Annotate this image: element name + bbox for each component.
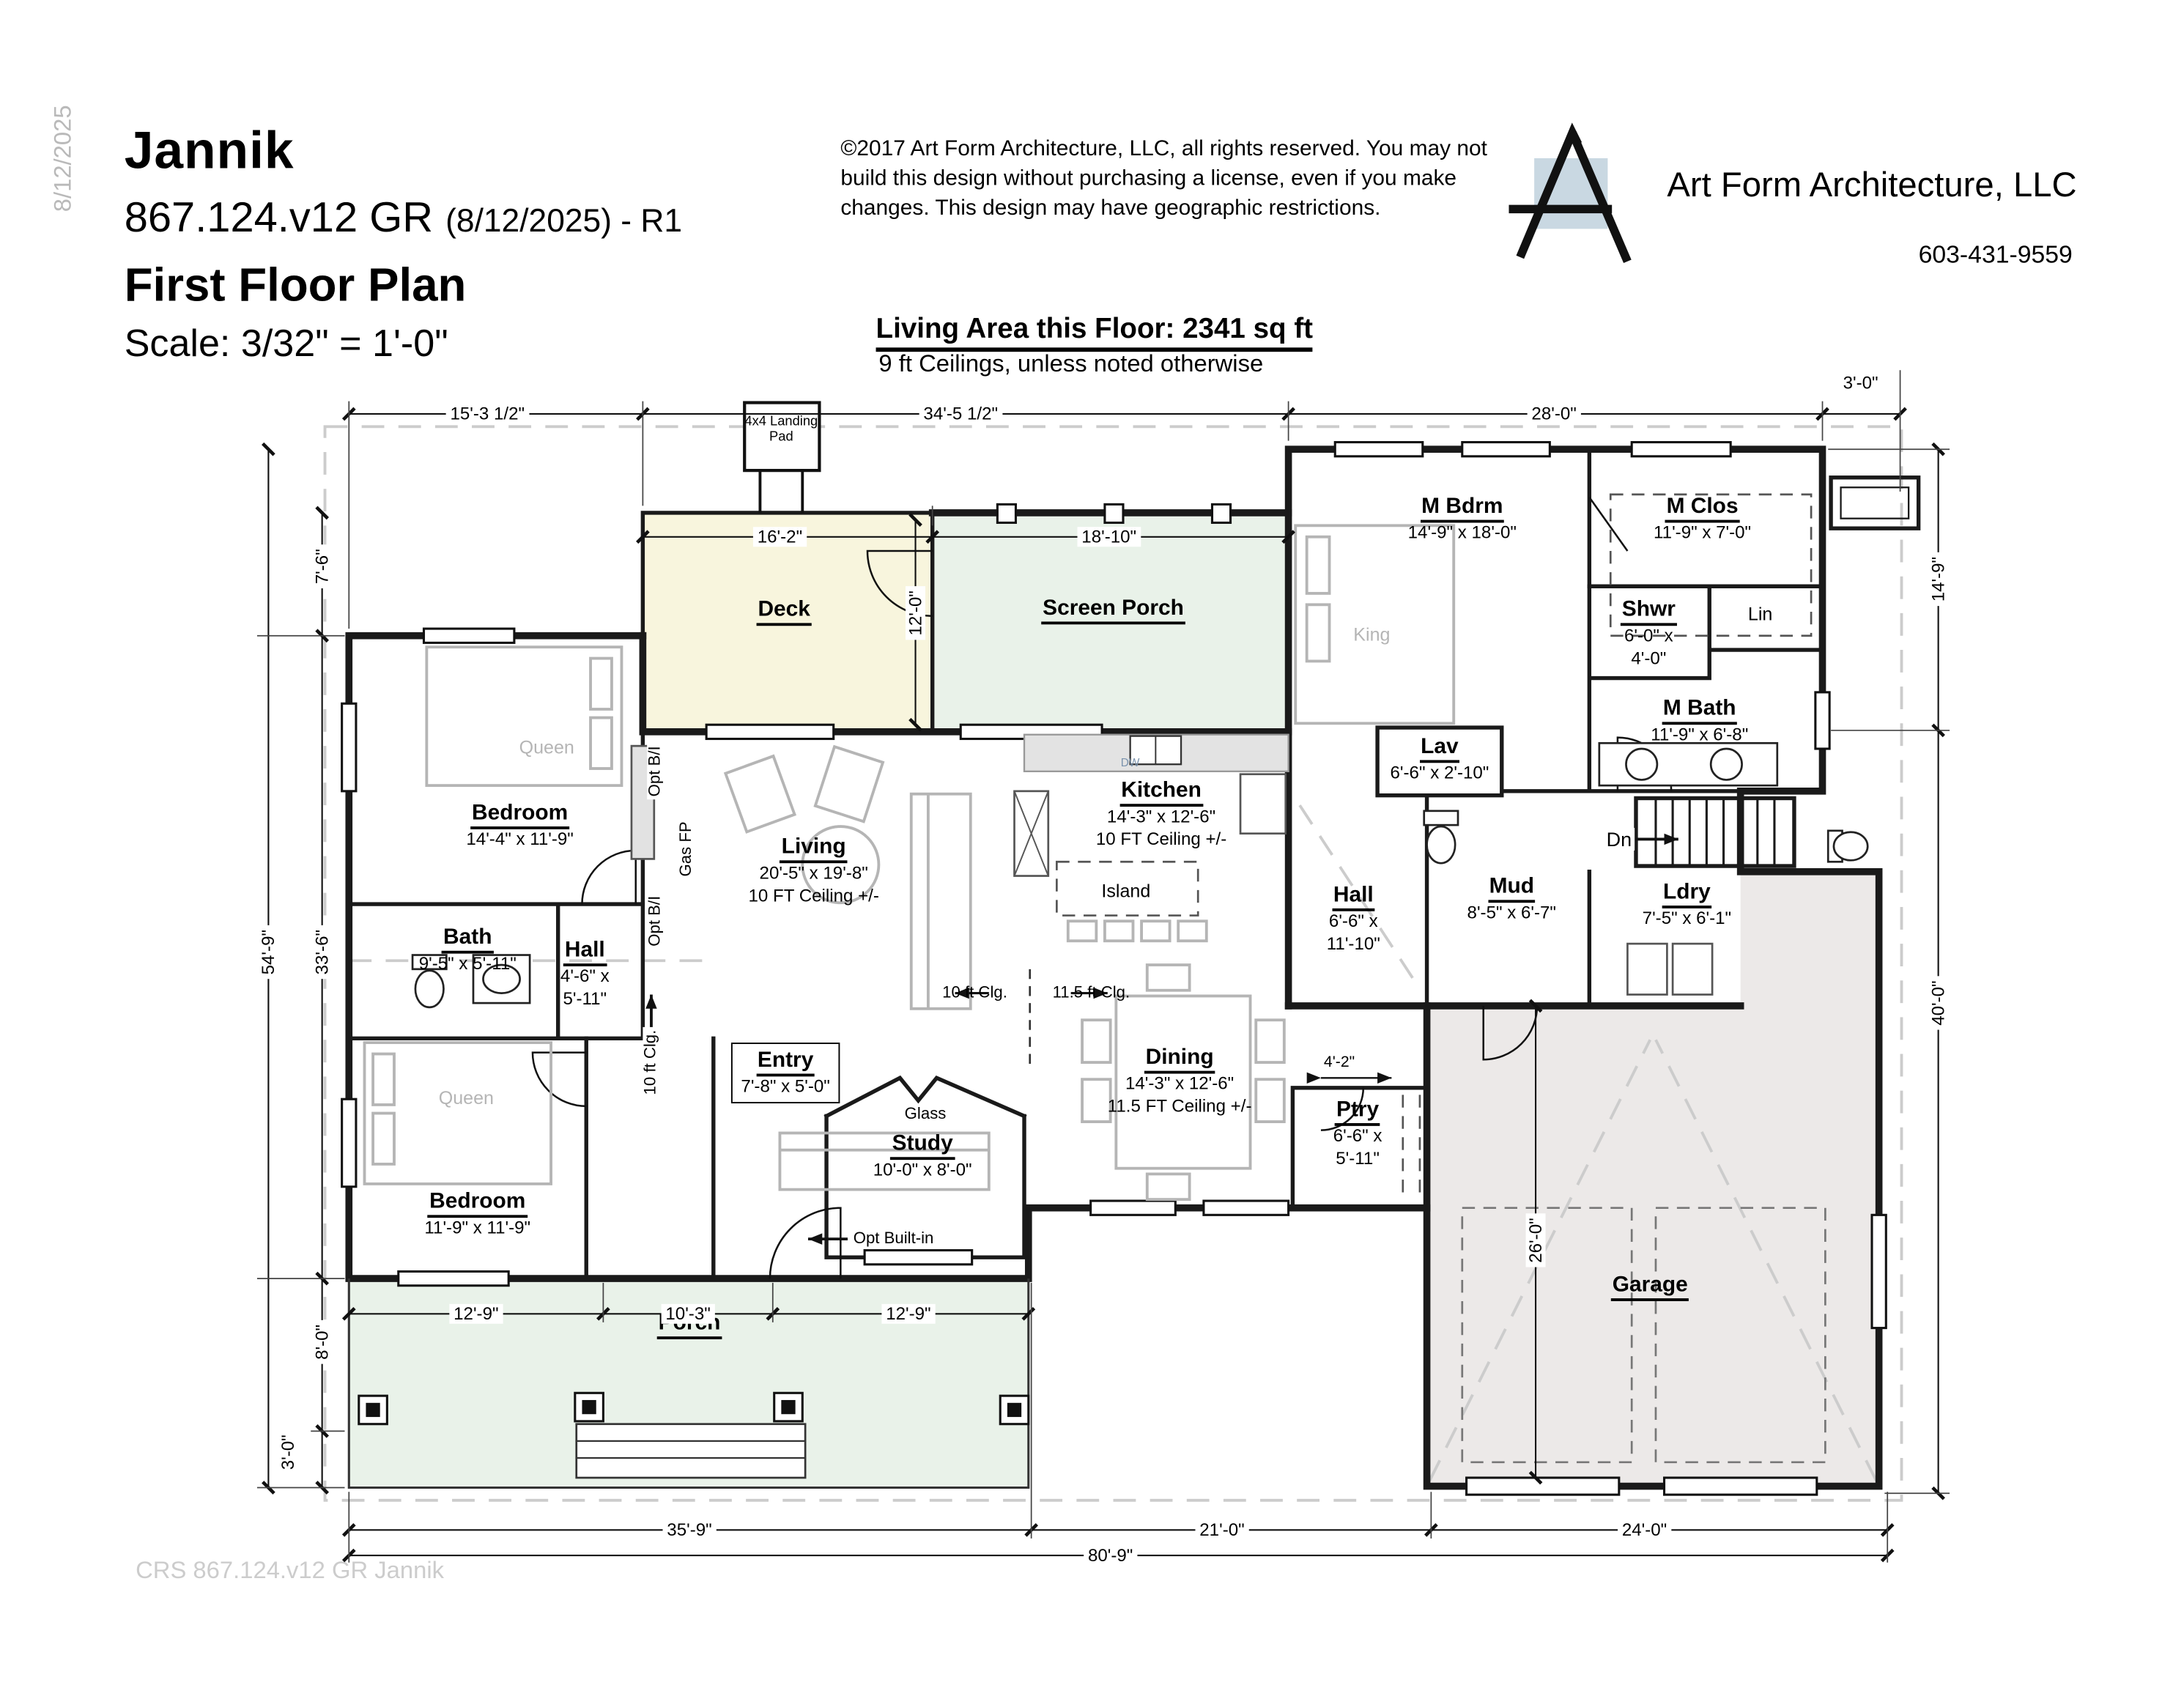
room-label-hall1: Hall4'-6" x5'-11" — [560, 936, 610, 1010]
room-size: 14'-3" x 12'-6" — [1108, 1074, 1252, 1096]
room-size: 9'-5" x 5'-11" — [419, 954, 517, 976]
floor-plan-sheet: 8/12/2025 Jannik 867.124.v12 GR (8/12/20… — [0, 0, 2184, 1688]
room-name: Shwr — [1621, 596, 1677, 626]
dim-deck-depth: 12'-0" — [906, 586, 925, 640]
dim-bottom-overall: 80'-9" — [1084, 1546, 1137, 1566]
room-size: 10'-0" x 8'-0" — [873, 1160, 972, 1182]
room-label-bath: Bath9'-5" x 5'-11" — [419, 924, 517, 976]
room-size: 14'-9" x 18'-0" — [1408, 523, 1517, 545]
room-name: Living — [780, 834, 848, 864]
room-label-screen-porch: Screen Porch — [1041, 595, 1185, 625]
dim-top-master: 28'-0" — [1528, 404, 1581, 423]
opt-built-in-callout: Opt Built-in — [854, 1231, 934, 1248]
dim-deck-width: 16'-2" — [753, 527, 807, 547]
room-name: Bedroom — [428, 1188, 527, 1218]
room-size: 7'-5" x 6'-1" — [1643, 909, 1731, 931]
room-size: 4'-6" x — [560, 967, 610, 989]
dim-left-upper: 7'-6" — [312, 544, 332, 588]
room-name: Lav — [1419, 733, 1459, 763]
ceiling-break-right-label: 11.5 ft Clg. — [1053, 985, 1130, 1002]
bed-label-king: King — [1353, 623, 1390, 645]
room-name: Ptry — [1335, 1096, 1380, 1126]
room-label-lav: Lav6'-6" x 2'-10" — [1391, 733, 1489, 785]
room-name: Study — [891, 1130, 955, 1160]
bed-label-queen-1: Queen — [519, 737, 574, 758]
bed-label-queen-2: Queen — [439, 1087, 494, 1108]
room-label-m-bath: M Bath11'-9" x 6'-8" — [1651, 695, 1748, 747]
dim-porch-right: 12'-9" — [881, 1304, 935, 1324]
gas-fireplace-label: Gas FP — [678, 818, 695, 879]
dim-garage-depth: 26'-0" — [1526, 1214, 1546, 1267]
room-size: 6'-0" x — [1621, 626, 1677, 648]
room-name: Ldry — [1662, 878, 1712, 908]
room-ceiling: 10 FT Ceiling +/- — [748, 886, 878, 908]
room-name: Mud — [1488, 873, 1536, 903]
room-label-study: Study10'-0" x 8'-0" — [873, 1130, 972, 1182]
room-label-deck: Deck — [757, 596, 812, 626]
room-size: 11'-10" — [1327, 934, 1380, 956]
room-name: Kitchen — [1119, 777, 1202, 807]
room-label-island: Island — [1100, 877, 1152, 906]
room-label-ldry: Ldry7'-5" x 6'-1" — [1643, 878, 1731, 930]
room-label-ptry: Ptry6'-6" x5'-11" — [1333, 1096, 1382, 1170]
dim-bottom-right: 24'-0" — [1618, 1520, 1671, 1540]
room-name: M Bath — [1662, 695, 1737, 725]
room-size: 11'-9" x 11'-9" — [424, 1218, 530, 1240]
room-label-m-bdrm: M Bdrm14'-9" x 18'-0" — [1408, 493, 1517, 545]
dim-right-lower: 40'-0" — [1928, 977, 1948, 1030]
room-label-entry: Entry7'-8" x 5'-0" — [731, 1043, 840, 1103]
dim-top-right-offset: 3'-0" — [1839, 373, 1883, 393]
room-label-bedroom1: Bedroom14'-4" x 11'-9" — [466, 799, 573, 851]
room-size: 6'-6" x — [1333, 1127, 1382, 1149]
room-label-shwr: Shwr6'-0" x4'-0" — [1621, 596, 1677, 670]
dim-porch-left: 12'-9" — [449, 1304, 503, 1324]
stairs — [1656, 798, 1774, 866]
room-size: 5'-11" — [1333, 1149, 1382, 1171]
room-label-bedroom2: Bedroom11'-9" x 11'-9" — [424, 1188, 530, 1240]
room-name: Lin — [1747, 603, 1774, 626]
dim-pantry-width: 4'-2" — [1319, 1054, 1359, 1071]
stairs-down-label: Dn — [1604, 828, 1635, 851]
room-name: Dining — [1144, 1044, 1215, 1074]
room-size: 14'-4" x 11'-9" — [466, 830, 573, 852]
dim-left-step: 3'-0" — [278, 1431, 298, 1475]
dim-left-porch: 8'-0" — [312, 1320, 332, 1364]
room-label-garage: Garage — [1611, 1271, 1689, 1301]
room-label-kitchen: Kitchen14'-3" x 12'-6"10 FT Ceiling +/- — [1096, 777, 1226, 851]
room-label-lin: Lin — [1747, 601, 1774, 629]
room-size: 6'-6" x — [1327, 911, 1380, 933]
opt-built-in-label-top: Opt B/I — [647, 743, 664, 799]
room-label-m-clos: M Clos11'-9" x 7'-0" — [1654, 493, 1751, 545]
dim-bottom-left: 35'-9" — [663, 1520, 717, 1540]
room-label-dining: Dining14'-3" x 12'-6"11.5 FT Ceiling +/- — [1108, 1044, 1252, 1118]
dim-right-upper: 14'-9" — [1928, 552, 1948, 606]
room-name: Island — [1100, 880, 1152, 903]
ceiling-10ft-vertical-label: 10 ft Clg. — [643, 1027, 659, 1097]
landing-pad-line2: Pad — [769, 430, 793, 445]
ceiling-break-left-label: 10 ft Clg. — [942, 985, 1007, 1002]
firm-logo — [1509, 116, 1664, 271]
room-size: 11'-9" x 6'-8" — [1651, 725, 1748, 747]
room-name: M Bdrm — [1420, 493, 1504, 523]
room-size: 4'-0" — [1621, 648, 1677, 670]
room-ceiling: 10 FT Ceiling +/- — [1096, 829, 1226, 851]
room-name: Screen Porch — [1041, 595, 1185, 625]
room-name: Bedroom — [470, 799, 569, 829]
room-size: 11'-9" x 7'-0" — [1654, 523, 1751, 545]
room-size: 5'-11" — [560, 989, 610, 1011]
landing-pad-line1: 4x4 Landing — [744, 414, 818, 429]
room-label-living: Living20'-5" x 19'-8"10 FT Ceiling +/- — [748, 834, 878, 908]
floor-plan-drawing — [0, 0, 2184, 1688]
room-label-mud: Mud8'-5" x 6'-7" — [1467, 873, 1556, 925]
dim-top-center: 34'-5 1/2" — [919, 404, 1002, 423]
room-name: M Clos — [1665, 493, 1740, 523]
room-name: Hall — [563, 936, 607, 966]
sheet-viewport: 8/12/2025 Jannik 867.124.v12 GR (8/12/20… — [0, 0, 2184, 1688]
room-size: 14'-3" x 12'-6" — [1096, 807, 1226, 829]
dim-screen-porch-width: 18'-10" — [1078, 527, 1141, 547]
room-size: 8'-5" x 6'-7" — [1467, 903, 1556, 925]
room-size: 7'-8" x 5'-0" — [741, 1077, 829, 1099]
dim-top-left-wing: 15'-3 1/2" — [446, 404, 529, 423]
dim-bottom-center: 21'-0" — [1195, 1520, 1248, 1540]
dim-porch-center: 10'-3" — [662, 1304, 715, 1324]
room-name: Garage — [1611, 1271, 1689, 1301]
room-name: Deck — [757, 596, 812, 626]
opt-built-in-label-bottom: Opt B/I — [647, 893, 664, 949]
room-size: 6'-6" x 2'-10" — [1391, 763, 1489, 785]
dim-left-middle: 33'-6" — [312, 925, 332, 979]
dishwasher-label: DW — [1121, 757, 1140, 769]
room-label-hall2: Hall6'-6" x11'-10" — [1327, 881, 1380, 955]
glass-label: Glass — [905, 1106, 947, 1123]
room-name: Entry — [756, 1047, 815, 1077]
room-ceiling: 11.5 FT Ceiling +/- — [1108, 1096, 1252, 1118]
landing-pad-label: 4x4 LandingPad — [744, 414, 818, 446]
dim-left-overall: 54'-9" — [259, 925, 278, 979]
room-name: Bath — [442, 924, 493, 954]
room-size: 20'-5" x 19'-8" — [748, 864, 878, 886]
room-name: Hall — [1332, 881, 1375, 911]
